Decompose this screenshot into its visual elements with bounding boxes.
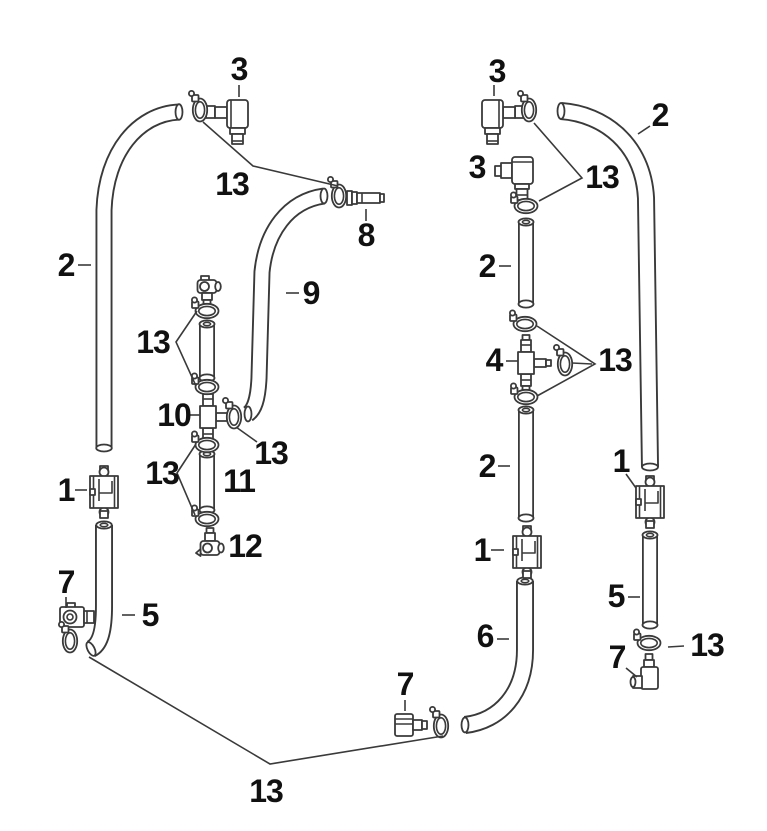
leader-line-part-13	[572, 363, 592, 364]
callout-label-3: 3	[231, 51, 248, 87]
callout-label-12: 12	[228, 528, 262, 564]
leader-line-part-13	[89, 657, 443, 764]
tube-2-lower	[519, 406, 534, 521]
callout-label-13: 13	[598, 342, 632, 378]
callout-label-1: 1	[613, 443, 630, 479]
hose-5-left	[84, 521, 111, 657]
callout-label-2: 2	[58, 247, 75, 283]
callout-layer: 3138291310131311112753313224132115613771…	[58, 51, 724, 809]
callout-label-13: 13	[145, 455, 179, 491]
callout-label-7: 7	[397, 666, 414, 702]
tube-middle-upper	[200, 320, 215, 381]
callout-label-13: 13	[254, 435, 288, 471]
hose-clamp	[189, 91, 207, 122]
elbow-fitting-7-bottom-right	[631, 654, 659, 689]
callout-label-5: 5	[142, 597, 159, 633]
callout-label-8: 8	[358, 217, 375, 253]
leader-line-part-13	[668, 646, 684, 647]
connector-1-center	[513, 526, 541, 578]
hose-clamp	[510, 310, 537, 331]
callout-label-9: 9	[303, 275, 320, 311]
tube-5-right	[643, 531, 658, 628]
callout-label-13: 13	[215, 166, 249, 202]
connector-1-left	[90, 466, 118, 518]
callout-label-6: 6	[477, 618, 494, 654]
screw-fitting-8	[347, 191, 384, 205]
hose-clamp	[634, 629, 661, 650]
callout-label-13: 13	[585, 159, 619, 195]
leader-line-part-13	[177, 444, 196, 515]
hose-clamp	[328, 177, 346, 208]
connector-1-right	[636, 476, 664, 528]
callout-label-1: 1	[58, 472, 75, 508]
callout-label-11: 11	[223, 463, 255, 499]
tube-11	[200, 450, 215, 513]
callout-label-5: 5	[608, 578, 625, 614]
leader-line-part-7	[626, 668, 637, 677]
elbow-fitting-7-bottom-center	[395, 714, 427, 736]
callout-label-2: 2	[479, 248, 496, 284]
vent-fitting-12	[196, 528, 224, 556]
parts-diagram: 3138291310131311112753313224132115613771…	[0, 0, 767, 831]
callout-label-13: 13	[690, 627, 724, 663]
diagram-page: 3138291310131311112753313224132115613771…	[0, 0, 767, 831]
hose-clamp	[554, 345, 572, 376]
cross-fitting-4	[518, 335, 551, 391]
vent-fitting-middle-top	[198, 276, 221, 305]
leader-line-part-2	[638, 126, 650, 134]
callout-label-2: 2	[652, 97, 669, 133]
callout-label-7: 7	[609, 639, 626, 675]
callout-label-13: 13	[136, 324, 170, 360]
callout-label-3: 3	[469, 149, 486, 185]
callout-label-2: 2	[479, 448, 496, 484]
callout-label-7: 7	[58, 564, 75, 600]
callout-label-4: 4	[486, 342, 504, 378]
leader-line-part-13	[534, 123, 582, 201]
callout-label-3: 3	[489, 53, 506, 89]
callout-label-13: 13	[249, 773, 283, 809]
hose-6	[462, 577, 533, 732]
callout-label-10: 10	[157, 397, 191, 433]
tube-2-upper	[519, 218, 534, 307]
hose-clamp	[430, 707, 448, 738]
elbow-fitting-7-left	[60, 603, 94, 627]
callout-label-1: 1	[474, 532, 491, 568]
